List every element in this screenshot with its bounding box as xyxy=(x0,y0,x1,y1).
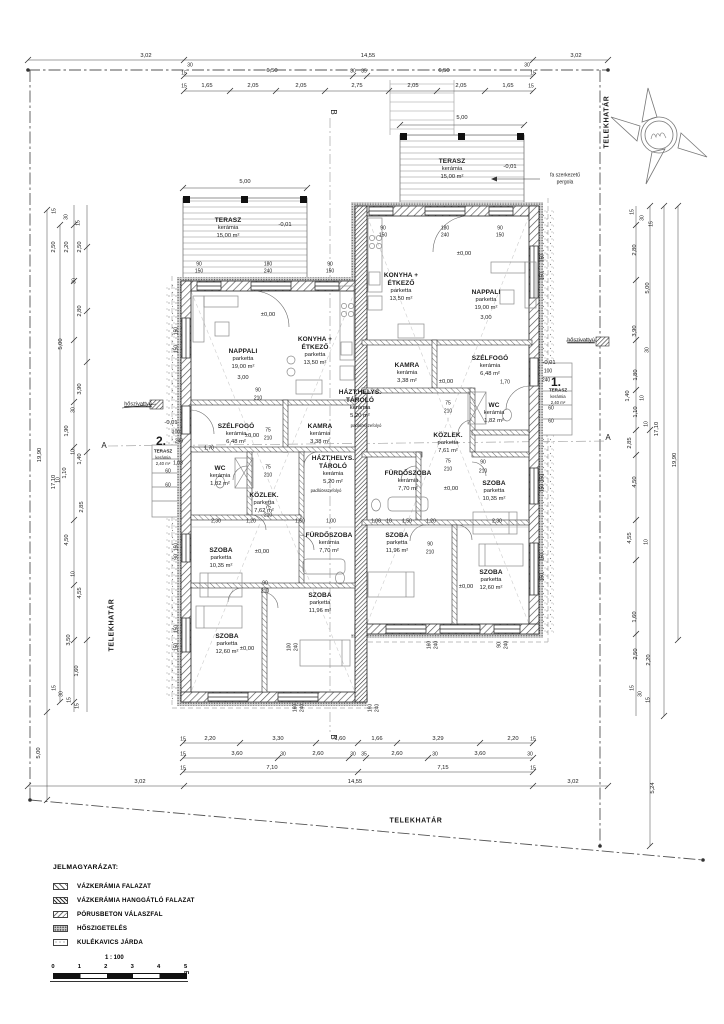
dimension-label: 150 xyxy=(326,270,334,275)
room-detail-label: kerámia xyxy=(210,474,231,480)
dimension-label: 210 xyxy=(264,437,272,442)
room-name-label: NAPPALI xyxy=(229,349,258,356)
dimension-label: 15 xyxy=(180,753,186,758)
dimension-label: 30 xyxy=(187,64,193,69)
room-name-label: SZOBA xyxy=(479,570,502,577)
section-marker-label: A xyxy=(605,434,610,442)
dimension-label: 75 xyxy=(265,506,271,511)
unit-number-label: 2. xyxy=(156,435,166,447)
dimension-label: 1,00 xyxy=(326,520,336,525)
dimension-label: 1,65 xyxy=(201,84,212,90)
legend-item: KULÉKAVICS JÁRDA xyxy=(53,935,313,949)
dimension-label: 210 xyxy=(261,590,269,595)
dimension-label: 2,50 xyxy=(52,241,58,252)
dimension-label: 14,55 xyxy=(348,780,363,786)
dimension-label: 100 xyxy=(172,431,180,436)
dimension-label: 30 xyxy=(72,407,77,413)
dimension-label: 150 xyxy=(541,474,546,482)
dimension-label: 150 xyxy=(541,553,546,561)
dimension-label: -0,01 xyxy=(542,361,555,367)
dimension-label: 160 xyxy=(294,704,299,712)
unit-number-label: 1. xyxy=(551,376,561,388)
dimension-label: 90 xyxy=(255,389,261,394)
dimension-label: 1,20 xyxy=(426,520,436,525)
room-detail-label: 19,00 m² xyxy=(475,306,498,312)
dimension-label: 2,20 xyxy=(647,654,653,665)
dimension-label: 3,02 xyxy=(134,780,145,786)
dimension-label: 2,50 xyxy=(634,648,640,659)
dimension-label: 1,40 xyxy=(78,453,84,464)
dimension-label: 10 xyxy=(386,520,392,525)
dimension-label: 15 xyxy=(650,221,655,227)
legend-item: VÁZKERÁMIA FALAZAT xyxy=(53,879,313,893)
floor-plan-page: TERASZkerámia15,00 m²-0,015,00NAPPALIpar… xyxy=(0,0,724,1024)
dimension-label: 15 xyxy=(76,703,81,709)
dimension-label: 1,50 xyxy=(295,520,305,525)
dimension-label: 4,50 xyxy=(65,534,71,545)
room-detail-label: 15,00 m² xyxy=(441,175,464,181)
dimension-label: 3,29 xyxy=(432,737,443,743)
dimension-label: 210 xyxy=(444,410,452,415)
scale-tick-labels: 0 1 2 3 4 5 m xyxy=(53,964,193,972)
room-detail-label: 7,70 m² xyxy=(398,487,418,493)
room-detail-label: kerámia xyxy=(442,167,463,173)
room-detail-label: parketta xyxy=(391,289,412,295)
dimension-label: 240 xyxy=(376,704,381,712)
dimension-label: ±0,00 xyxy=(439,380,453,386)
room-detail-label: kerámia xyxy=(484,411,505,417)
room-name-label: ÉTKEZŐ xyxy=(388,281,415,288)
dimension-label: 3,50 xyxy=(67,634,73,645)
dimension-label: 15 xyxy=(631,685,636,691)
dimension-label: 5,00 xyxy=(456,116,467,122)
legend-item-label: KULÉKAVICS JÁRDA xyxy=(77,939,143,946)
room-name-label: KAMRA xyxy=(395,363,420,370)
dimension-label: 210 xyxy=(264,474,272,479)
room-detail-label: parketta xyxy=(481,578,502,584)
scale-tick: 3 xyxy=(131,964,134,970)
dimension-label: 3,00 xyxy=(237,376,248,382)
dimension-label: 10 xyxy=(72,571,77,577)
room-name-label: TÁROLÓ xyxy=(346,398,374,405)
dimension-label: 1,70 xyxy=(500,381,510,386)
legend-item: HŐSZIGETELÉS xyxy=(53,921,313,935)
legend-item: VÁZKERÁMIA HANGGÁTLÓ FALAZAT xyxy=(53,893,313,907)
dimension-label: 150 xyxy=(541,573,546,581)
dimension-label: 180 xyxy=(264,263,272,268)
note-label: 2,40 m² xyxy=(156,462,171,466)
room-detail-label: 11,96 m² xyxy=(309,609,331,615)
dimension-label: fa szerkezetű xyxy=(550,174,580,179)
room-detail-label: 12,60 m² xyxy=(216,650,239,656)
legend-item-label: HŐSZIGETELÉS xyxy=(77,925,127,932)
dimension-label: 1,03 xyxy=(173,462,183,467)
dimension-label: 6,50 xyxy=(266,69,277,75)
dimension-label: 1,60 xyxy=(334,737,345,743)
dimension-label: 30 xyxy=(60,691,65,697)
dots-dense-swatch xyxy=(53,925,68,932)
stipple-swatch xyxy=(53,939,68,946)
room-name-label: KONYHA + xyxy=(298,337,332,344)
dimension-label: 3,00 xyxy=(480,316,491,322)
room-detail-label: kerámia xyxy=(323,472,344,478)
dimension-label: 15 xyxy=(68,697,73,703)
dimension-label: 4,55 xyxy=(78,587,84,598)
boundary-label: TELEKHATÁR xyxy=(604,96,611,149)
room-name-label: TERASZ xyxy=(439,159,466,166)
room-name-label: HÁZT.HELYS. xyxy=(339,390,381,397)
dimension-label: 30 xyxy=(639,691,644,697)
dimension-label: 2,20 xyxy=(507,737,518,743)
dimension-label: -0,01 xyxy=(164,421,177,427)
room-detail-label: kerámia xyxy=(350,406,371,412)
room-name-label: SZÉLFOGÓ xyxy=(472,356,509,363)
dimension-label: 7,10 xyxy=(266,766,277,772)
room-detail-label: parketta xyxy=(476,298,497,304)
dimension-label: 35 xyxy=(361,753,367,758)
room-detail-label: 7,70 m² xyxy=(319,549,339,555)
dimension-label: 14,55 xyxy=(361,54,376,60)
dimension-label: 2,30 xyxy=(211,520,221,525)
hatch-light-swatch xyxy=(53,911,68,918)
dimension-label: 2,85 xyxy=(80,501,86,512)
dimension-label: 30 xyxy=(65,214,70,220)
dimension-label: 160 xyxy=(369,704,374,712)
dimension-label: 3,90 xyxy=(78,383,84,394)
dimension-label: 240 xyxy=(295,643,300,651)
section-marker-label: B xyxy=(329,109,337,114)
room-name-label: TÁROLÓ xyxy=(319,464,347,471)
dimension-label: 2,05 xyxy=(407,84,418,90)
dimension-label: 1,80 xyxy=(634,369,640,380)
dimension-label: 15 xyxy=(53,208,58,214)
dimension-label: 30 xyxy=(350,70,356,75)
note-label: kerámia xyxy=(550,395,565,399)
room-name-label: KAMRA xyxy=(308,424,333,431)
dimension-label: 3,90 xyxy=(633,325,639,336)
dimension-label: 30 xyxy=(524,64,530,69)
room-detail-label: 15,00 m² xyxy=(217,234,240,240)
legend-item-label: VÁZKERÁMIA FALAZAT xyxy=(77,883,151,890)
dimension-label: 15 xyxy=(528,85,534,90)
dimension-label: 15 xyxy=(530,738,536,743)
dimension-label: 180 xyxy=(441,227,449,232)
room-name-label: WC xyxy=(214,466,225,473)
dimension-label: 60 xyxy=(548,407,554,412)
dimension-label: 3,30 xyxy=(272,737,283,743)
dimension-label: 10 xyxy=(645,421,650,427)
dimension-label: 1,00 xyxy=(371,520,381,525)
dimension-label: 2,30 xyxy=(492,520,502,525)
dimension-label: 30 xyxy=(73,278,78,284)
dimension-label: 90 xyxy=(262,582,268,587)
dimension-label: 1,40 xyxy=(626,390,632,401)
room-detail-label: 11,96 m² xyxy=(386,549,408,555)
room-detail-label: 6,48 m² xyxy=(226,440,246,446)
room-detail-label: 19,00 m² xyxy=(232,365,255,371)
dimension-label: 160 xyxy=(428,641,433,649)
dimension-label: 10 xyxy=(645,539,650,545)
note-label: TERASZ xyxy=(549,389,567,394)
note-label: padlóösszefolyó xyxy=(311,489,342,493)
room-detail-label: kerámia xyxy=(226,432,247,438)
room-detail-label: kerámia xyxy=(319,541,340,547)
dimension-label: ±0,00 xyxy=(459,585,473,591)
room-name-label: FÜRDŐSZOBA xyxy=(306,533,353,540)
room-name-label: SZOBA xyxy=(308,593,331,600)
dimension-label: 2,50 xyxy=(78,241,84,252)
dimension-label: 150 xyxy=(496,234,504,239)
dimension-label: 90 xyxy=(175,554,180,560)
dimension-label: 5,24 xyxy=(651,782,657,793)
dimension-label: 15 xyxy=(180,767,186,772)
note-label: TERASZ xyxy=(154,450,172,455)
dimension-label: 15 xyxy=(647,697,652,703)
room-detail-label: parketta xyxy=(254,501,275,507)
dimension-label: 15 xyxy=(77,220,82,226)
room-detail-label: 3,38 m² xyxy=(310,440,330,446)
dimension-label: 150 xyxy=(541,254,546,262)
note-label: padlóösszefolyó xyxy=(351,424,382,428)
scale-bar-graphic xyxy=(53,973,187,979)
dimension-label: 3,02 xyxy=(567,780,578,786)
room-detail-label: 10,35 m² xyxy=(210,564,233,570)
dimension-label: ±0,00 xyxy=(444,487,458,493)
scale-tick: 2 xyxy=(104,964,107,970)
dimension-label: 15 xyxy=(180,738,186,743)
section-marker-label: A xyxy=(101,442,106,450)
note-label: kerámia xyxy=(155,456,170,460)
room-detail-label: parketta xyxy=(438,441,459,447)
room-detail-label: parketta xyxy=(233,357,254,363)
dimension-label: 240 xyxy=(435,641,440,649)
dimension-label: 1,70 xyxy=(204,447,214,452)
room-name-label: SZOBA xyxy=(209,548,232,555)
room-detail-label: parketta xyxy=(310,601,331,607)
dimension-label: 30 xyxy=(350,753,356,758)
dimension-label: 90 xyxy=(498,642,503,648)
dimension-label: 75 xyxy=(445,460,451,465)
dimension-label: ±0,00 xyxy=(240,647,254,653)
dimension-label: 19,90 xyxy=(673,453,679,468)
scale-bar-baseline xyxy=(50,981,188,982)
dimension-label: 240 xyxy=(441,234,449,239)
dimension-label: 2,80 xyxy=(633,244,639,255)
dimension-label: 15 xyxy=(181,72,187,77)
dimension-label: 240 xyxy=(175,440,183,445)
dimension-label: 15 xyxy=(181,85,187,90)
dimension-label: 1,10 xyxy=(63,467,69,478)
room-detail-label: 13,50 m² xyxy=(304,361,327,367)
room-detail-label: 3,38 m² xyxy=(397,379,417,385)
room-detail-label: 1,82 m² xyxy=(210,482,230,488)
dimension-label: 30 xyxy=(432,753,438,758)
dimension-label: 30 xyxy=(280,753,286,758)
scale-ratio-label: 1 : 100 xyxy=(105,955,124,961)
dimension-label: 3,60 xyxy=(474,752,485,758)
boundary-label: TELEKHATÁR xyxy=(390,818,443,825)
dimension-label: 210 xyxy=(479,470,487,475)
dimension-label: 7,15 xyxy=(437,766,448,772)
dimension-label: 90 xyxy=(427,543,433,548)
dimension-label: 2,75 xyxy=(351,84,362,90)
dimension-label: 90 xyxy=(380,227,386,232)
dimension-label: 100 xyxy=(544,370,552,375)
dimension-label: ±0,00 xyxy=(261,313,275,319)
north-arrow-icon xyxy=(611,88,707,184)
room-detail-label: kerámia xyxy=(398,479,419,485)
dimension-label: 2,60 xyxy=(312,752,323,758)
room-name-label: FÜRDŐSZOBA xyxy=(385,471,432,478)
dimension-label: 30 xyxy=(527,753,533,758)
dimension-label: 5,00 xyxy=(59,338,65,349)
dimension-label: 15 xyxy=(53,685,58,691)
dimension-label: 90 xyxy=(327,263,333,268)
dimension-label: 1,66 xyxy=(371,737,382,743)
dimension-label: 150 xyxy=(195,270,203,275)
room-detail-label: kerámia xyxy=(218,226,239,232)
legend: JELMAGYARÁZAT: VÁZKERÁMIA FALAZAT VÁZKER… xyxy=(53,864,313,949)
dimension-label: -0,01 xyxy=(278,223,291,229)
room-detail-label: parketta xyxy=(217,642,238,648)
legend-item-label: VÁZKERÁMIA HANGGÁTLÓ FALAZAT xyxy=(77,897,195,904)
dimension-label: -0,01 xyxy=(503,165,516,171)
dimension-label: 2,05 xyxy=(247,84,258,90)
walkway xyxy=(390,80,454,135)
dimension-label: 150 xyxy=(541,484,546,492)
hatch-dense-swatch xyxy=(53,897,68,904)
dimension-label: 100 xyxy=(288,643,293,651)
dimension-label: 240 xyxy=(264,270,272,275)
room-name-label: SZOBA xyxy=(482,481,505,488)
dimension-label: 150 xyxy=(175,625,180,633)
dimension-label: 15 xyxy=(631,209,636,215)
dimension-label: 75 xyxy=(445,402,451,407)
dimension-label: 10 xyxy=(641,395,646,401)
dimension-label: 3,60 xyxy=(231,752,242,758)
room-name-label: HÁZT.HELYS. xyxy=(312,456,354,463)
dimension-label: 2,05 xyxy=(455,84,466,90)
note-label: 2,40 m² xyxy=(551,401,566,405)
dimension-label: 5,00 xyxy=(37,747,43,758)
dimension-label: 60 xyxy=(548,420,554,425)
boundary-label: TELEKHATÁR xyxy=(109,599,116,652)
dimension-label: 19,90 xyxy=(38,448,44,463)
dimension-label: 2,80 xyxy=(78,305,84,316)
dimension-label: 150 xyxy=(175,327,180,335)
dimension-label: 210 xyxy=(426,551,434,556)
dimension-label: 2,60 xyxy=(391,752,402,758)
room-detail-label: 5,20 m² xyxy=(350,414,370,420)
dimension-label: 90 xyxy=(196,263,202,268)
dimension-label: 30 xyxy=(646,347,651,353)
room-detail-label: parketta xyxy=(305,353,326,359)
dimension-label: 210 xyxy=(254,397,262,402)
room-name-label: SZOBA xyxy=(385,533,408,540)
dimension-label: 150 xyxy=(175,643,180,651)
scale-tick: 0 xyxy=(51,964,54,970)
dimension-label: 90 xyxy=(497,227,503,232)
room-detail-label: parketta xyxy=(387,541,408,547)
room-detail-label: 12,60 m² xyxy=(480,586,503,592)
room-detail-label: kerámia xyxy=(310,432,331,438)
dimension-label: 2,85 xyxy=(628,437,634,448)
dimension-label: 210 xyxy=(444,468,452,473)
hatch-diagonal-swatch xyxy=(53,883,68,890)
dimension-label: 1,10 xyxy=(634,406,640,417)
dimension-label: 150 xyxy=(175,345,180,353)
dimension-label: 5,00 xyxy=(646,282,652,293)
annotation-label: hőszivattyú xyxy=(124,402,152,408)
room-detail-label: parketta xyxy=(211,556,232,562)
room-name-label: NAPPALI xyxy=(472,290,501,297)
dimension-label: 4,55 xyxy=(628,532,634,543)
room-detail-label: 10,35 m² xyxy=(483,497,506,503)
dimension-label: 3,02 xyxy=(140,54,151,60)
dimension-label: ±0,00 xyxy=(245,434,259,440)
scale-tick: 1 xyxy=(78,964,81,970)
dimension-label: 1,60 xyxy=(75,665,81,676)
room-detail-label: 6,48 m² xyxy=(480,372,500,378)
dimension-lines xyxy=(28,60,678,846)
dimension-label: 60 xyxy=(165,470,171,475)
dimension-label: 17,10 xyxy=(655,422,661,437)
room-name-label: TERASZ xyxy=(215,218,242,225)
scale-tick: 4 xyxy=(157,964,160,970)
room-detail-label: 13,50 m² xyxy=(390,297,413,303)
dimension-label: 1,50 xyxy=(402,520,412,525)
dimension-label: 2,05 xyxy=(295,84,306,90)
room-detail-label: kerámia xyxy=(397,371,418,377)
legend-item-label: PÓRUSBETON VÁLASZFAL xyxy=(77,911,163,918)
dimension-label: 3,02 xyxy=(570,54,581,60)
legend-title: JELMAGYARÁZAT: xyxy=(53,864,313,871)
dimension-label: 240 xyxy=(542,379,550,384)
room-detail-label: 1,82 m² xyxy=(484,419,504,425)
room-detail-label: kerámia xyxy=(480,364,501,370)
room-name-label: KONYHA + xyxy=(384,273,418,280)
legend-item: PÓRUSBETON VÁLASZFAL xyxy=(53,907,313,921)
dimension-label: 10 xyxy=(72,449,77,455)
dimension-label: 2,20 xyxy=(204,737,215,743)
dimension-label: 15 xyxy=(530,767,536,772)
dimension-label: 5,00 xyxy=(239,180,250,186)
dimension-label: 35 xyxy=(361,70,367,75)
dimension-label: 90 xyxy=(480,461,486,466)
dimension-ticks xyxy=(25,57,681,849)
dimension-label: 1,65 xyxy=(502,84,513,90)
dimension-label: 15 xyxy=(530,72,536,77)
room-detail-label: parketta xyxy=(484,489,505,495)
dimension-label: 210 xyxy=(264,514,272,519)
dimension-label: 240 xyxy=(301,704,306,712)
scale-bar: 1 : 100 0 1 2 3 4 5 m xyxy=(53,955,193,982)
dimension-label: 1,60 xyxy=(633,611,639,622)
dimension-label: 150 xyxy=(175,543,180,551)
dimension-label: pergola xyxy=(557,181,574,186)
annotation-label: hőszivattyú xyxy=(567,338,595,344)
dimension-label: 1,90 xyxy=(65,425,71,436)
room-name-label: SZÉLFOGÓ xyxy=(218,424,255,431)
dimension-label: 60 xyxy=(165,484,171,489)
dimension-label: 4,50 xyxy=(633,476,639,487)
dimension-label: 2,20 xyxy=(65,241,71,252)
dimension-label: 6,50 xyxy=(438,69,449,75)
dimension-label: 1,20 xyxy=(246,520,256,525)
room-detail-label: 5,20 m² xyxy=(323,480,343,486)
dimension-label: ±0,00 xyxy=(255,550,269,556)
dimension-label: ±0,00 xyxy=(457,252,471,258)
